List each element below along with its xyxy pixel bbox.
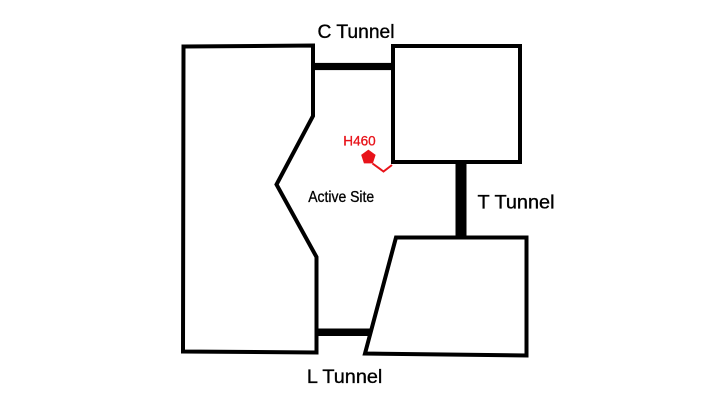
svg-text:L Tunnel: L Tunnel: [307, 366, 383, 388]
svg-text:Active Site: Active Site: [308, 189, 374, 206]
svg-text:H460: H460: [343, 133, 376, 149]
svg-text:T Tunnel: T Tunnel: [478, 191, 555, 213]
svg-text:C Tunnel: C Tunnel: [318, 21, 395, 43]
